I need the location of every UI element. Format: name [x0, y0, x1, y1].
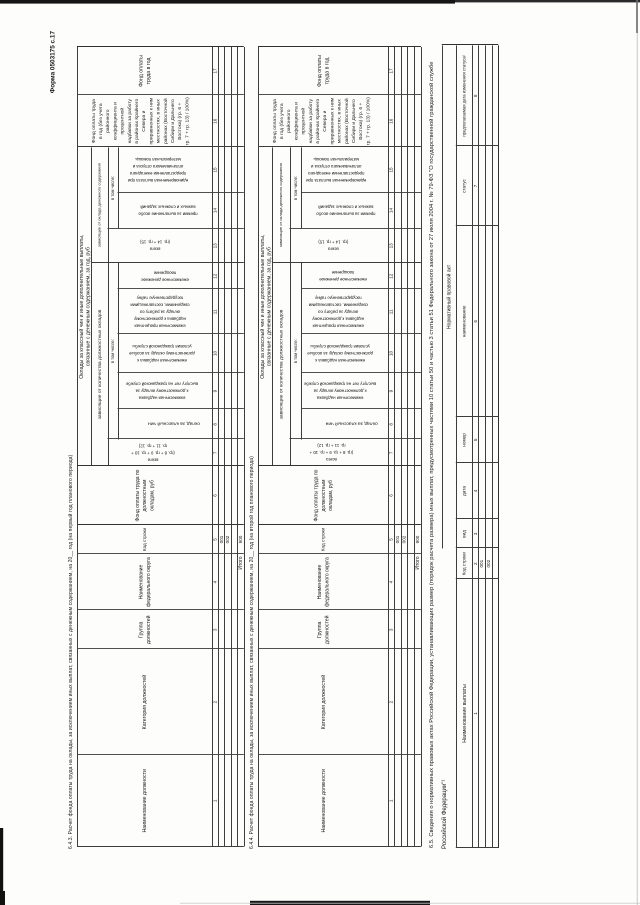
svg-text:зависящие от количества должно: зависящие от количества должностных окла… [98, 309, 103, 419]
svg-text:ежемесячное денежное: ежемесячное денежное [319, 277, 367, 282]
svg-text:2: 2 [212, 700, 217, 703]
svg-text:Код строки: Код строки [142, 527, 147, 551]
svg-text:федерального округа: федерального округа [324, 557, 330, 607]
svg-text:должностей: должностей [324, 615, 331, 644]
svg-text:6: 6 [389, 494, 394, 497]
svg-text:местностях, в иных: местностях, в иных [157, 99, 162, 144]
svg-text:премии за выполнение особо: премии за выполнение особо [316, 211, 376, 216]
svg-text:9: 9 [389, 389, 394, 392]
svg-text:окладу за работу со: окладу за работу со [139, 309, 180, 314]
svg-text:ежемесячная надбавка к: ежемесячная надбавка к [137, 358, 187, 363]
svg-text:коэффициента и: коэффициента и [112, 102, 118, 140]
svg-text:001: 001 [219, 535, 224, 543]
svg-text:14: 14 [212, 208, 217, 214]
svg-text:4: 4 [473, 489, 478, 492]
svg-text:002: 002 [225, 535, 230, 543]
svg-text:Группа: Группа [139, 621, 145, 638]
svg-text:ежемесячная надбавка к: ежемесячная надбавка к [315, 358, 365, 363]
svg-text:(гр. 8 + гр. 9 + гр. 10 +: (гр. 8 + гр. 9 + гр. 10 + [131, 450, 175, 455]
svg-text:002: 002 [486, 559, 491, 567]
svg-text:10: 10 [212, 351, 217, 357]
svg-text:Наименование выплаты: Наименование выплаты [462, 684, 468, 743]
svg-text:районного: районного [285, 109, 292, 133]
svg-text:Код строки: Код строки [321, 527, 326, 551]
svg-text:условия гражданской службы: условия гражданской службы [310, 344, 369, 349]
svg-text:надбавки за работу: надбавки за работу [127, 98, 133, 143]
svg-text:1: 1 [473, 712, 478, 715]
svg-text:ежемесячная процентная: ежемесячная процентная [312, 323, 364, 328]
svg-text:1: 1 [212, 799, 217, 802]
svg-text:16: 16 [389, 118, 394, 124]
svg-text:коэффициента и: коэффициента и [293, 102, 299, 140]
svg-text:процентной: процентной [300, 108, 307, 135]
svg-text:дата: дата [462, 486, 467, 496]
svg-text:материальная помощь: материальная помощь [313, 157, 359, 162]
svg-text:Фонд оплаты труда: Фонд оплаты труда [91, 99, 97, 143]
svg-text:17: 17 [389, 68, 394, 74]
svg-text:зависящие от количества должно: зависящие от количества должностных окла… [280, 309, 285, 419]
svg-text:3: 3 [473, 532, 478, 535]
svg-text:вид: вид [462, 530, 467, 538]
svg-text:должностей: должностей [145, 615, 152, 644]
svg-text:6.5. Сведения о нормативных пр: 6.5. Сведения о нормативных правовых акт… [428, 62, 435, 848]
svg-text:зависящие от оклада денежного: зависящие от оклада денежного содержания [278, 163, 283, 247]
svg-text:6: 6 [473, 320, 478, 323]
svg-text:ежемесячная надбавка: ежемесячная надбавка [316, 396, 363, 401]
svg-text:важных и сложных заданий: важных и сложных заданий [140, 205, 196, 210]
svg-text:надбавка к должностному: надбавка к должностному [311, 316, 364, 321]
svg-text:в год (без учета: в год (без учета [279, 103, 285, 139]
svg-text:Нормативный правовой акт: Нормативный правовой акт [446, 264, 453, 329]
svg-text:местностях, в иных: местностях, в иных [338, 99, 343, 144]
svg-text:приравненных к ним: приравненных к ним [330, 97, 335, 144]
svg-text:государственную тайну: государственную тайну [314, 295, 361, 300]
svg-text:Оклады за классный чин и иные: Оклады за классный чин и иные дополнител… [259, 235, 266, 379]
svg-text:окладам, руб: окладам, руб [328, 480, 334, 511]
svg-text:Российской Федерации"¹: Российской Федерации"¹ [441, 780, 448, 849]
svg-text:10: 10 [389, 351, 394, 357]
svg-text:важных и сложных заданий: важных и сложных заданий [318, 204, 374, 209]
svg-text:связанные с денежным содержани: связанные с денежным содержанием, за год… [86, 247, 92, 366]
svg-text:Итого: Итого [415, 556, 421, 569]
svg-text:всего: всего [325, 457, 336, 462]
svg-text:Востока) (гр. 6 +: Востока) (гр. 6 + [177, 103, 183, 140]
svg-text:Сибири и Дальнего: Сибири и Дальнего [170, 99, 176, 143]
svg-text:12: 12 [389, 273, 394, 279]
svg-text:16: 16 [212, 118, 217, 124]
svg-text:9: 9 [212, 389, 217, 392]
svg-text:5: 5 [389, 538, 394, 541]
svg-text:6.4.3. Расчет фонда оплаты тру: 6.4.3. Расчет фонда оплаты труда на окла… [67, 455, 74, 849]
svg-text:Оклады за классный чин и иные: Оклады за классный чин и иные дополнител… [78, 235, 85, 379]
svg-text:Востока) (гр. 6 +: Востока) (гр. 6 + [358, 103, 364, 140]
svg-text:окладу за работу со: окладу за работу со [318, 309, 359, 314]
svg-text:единовременная выплата при: единовременная выплата при [306, 178, 367, 183]
svg-text:Севера и: Севера и [141, 110, 147, 131]
svg-text:оплачиваемого отпуска и: оплачиваемого отпуска и [310, 164, 361, 169]
svg-text:13: 13 [389, 243, 394, 249]
svg-text:3: 3 [212, 628, 217, 631]
svg-text:ежемесячная процентная: ежемесячная процентная [134, 323, 186, 328]
svg-text:всего: всего [147, 457, 158, 462]
svg-text:материальная помощь: материальная помощь [134, 157, 180, 162]
svg-text:оклад за классный чин: оклад за классный чин [148, 421, 200, 428]
svg-text:Фонд оплаты труда по: Фонд оплаты труда по [313, 469, 319, 521]
svg-text:(гр. 8 + гр. 9 + гр. 10 +: (гр. 8 + гр. 9 + гр. 10 + [309, 450, 353, 455]
svg-text:в год (без учета: в год (без учета [98, 103, 104, 139]
svg-text:8: 8 [473, 94, 478, 97]
svg-text:гр. 11 + гр. 12): гр. 11 + гр. 12) [138, 443, 167, 448]
svg-text:7: 7 [473, 184, 478, 187]
svg-text:в том числе:: в том числе: [293, 176, 298, 200]
svg-text:должностному окладу за особые: должностному окладу за особые [307, 351, 373, 356]
svg-text:оклад за классный чин: оклад за классный чин [325, 421, 377, 428]
svg-text:предполагаемая дата изменения: предполагаемая дата изменения статуса² [461, 54, 466, 136]
svg-text:Фонд оплаты труда: Фонд оплаты труда [272, 99, 278, 143]
svg-text:в том числе:: в том числе: [110, 339, 115, 363]
svg-text:(гр. 14 + гр. 15): (гр. 14 + гр. 15) [139, 240, 170, 245]
svg-text:номер: номер [462, 433, 467, 447]
svg-text:наименование: наименование [462, 305, 467, 337]
svg-text:сведениями, составляющими: сведениями, составляющими [130, 302, 190, 307]
svg-text:связанные с денежным содержани: связанные с денежным содержанием, за год… [267, 247, 273, 366]
svg-text:11: 11 [212, 309, 217, 314]
svg-text:должностным: должностным [142, 479, 148, 512]
svg-text:ежемесячная надбавка: ежемесячная надбавка [138, 396, 185, 401]
svg-text:должностным: должностным [321, 479, 327, 512]
svg-text:гр. 7 + гр. 13) / 100%): гр. 7 + гр. 13) / 100%) [184, 97, 190, 145]
svg-text:к должностному окладу за: к должностному окладу за [135, 389, 188, 394]
svg-text:районах (Восточной: районах (Восточной [162, 98, 169, 144]
svg-text:002: 002 [402, 535, 407, 543]
svg-text:процентной: процентной [119, 108, 126, 135]
svg-text:поощрение: поощрение [331, 270, 354, 275]
svg-text:единовременная выплата при: единовременная выплата при [127, 178, 188, 183]
svg-text:Сибири и Дальнего: Сибири и Дальнего [351, 99, 357, 143]
svg-text:оплачиваемого отпуска и: оплачиваемого отпуска и [132, 164, 183, 169]
svg-text:всего: всего [149, 247, 160, 252]
svg-text:900: 900 [415, 535, 420, 543]
svg-text:Категория должностей: Категория должностей [141, 675, 148, 730]
svg-text:гр. 11 + гр. 12): гр. 11 + гр. 12) [317, 443, 346, 448]
svg-text:6.4.4. Расчет фонда оплаты тру: 6.4.4. Расчет фонда оплаты труда на окла… [248, 456, 255, 849]
svg-text:государственную тайну: государственную тайну [136, 295, 183, 300]
svg-text:15: 15 [212, 167, 217, 173]
svg-text:4: 4 [212, 580, 217, 583]
svg-text:001: 001 [395, 535, 400, 543]
svg-text:8: 8 [389, 423, 394, 426]
svg-text:13: 13 [212, 243, 217, 249]
svg-text:предоставлении ежегодного: предоставлении ежегодного [129, 171, 186, 176]
svg-text:Фонд оплаты: Фонд оплаты [317, 55, 323, 87]
svg-text:6: 6 [212, 494, 217, 497]
svg-text:Фонд оплаты: Фонд оплаты [139, 55, 145, 87]
svg-text:условия гражданской службы: условия гражданской службы [132, 344, 191, 349]
svg-text:Форма 0503175 с.17: Форма 0503175 с.17 [49, 31, 56, 94]
svg-text:14: 14 [389, 208, 394, 214]
svg-text:в том числе:: в том числе: [110, 176, 115, 200]
svg-text:Группа: Группа [317, 621, 323, 638]
svg-text:в районах Крайнего: в районах Крайнего [314, 98, 321, 143]
svg-text:ежемесячное денежное: ежемесячное денежное [141, 277, 189, 282]
svg-text:Севера и: Севера и [322, 110, 328, 131]
svg-text:Код строки: Код строки [462, 552, 467, 576]
svg-text:Категория должностей: Категория должностей [320, 675, 327, 730]
svg-text:(гр. 14 + гр. 15): (гр. 14 + гр. 15) [318, 240, 349, 245]
svg-text:Наименование: Наименование [317, 565, 323, 600]
svg-text:001: 001 [479, 559, 484, 567]
svg-text:статус: статус [462, 178, 467, 192]
svg-text:премии за выполнение особо: премии за выполнение особо [138, 212, 198, 217]
svg-text:зависящие от оклада денежного: зависящие от оклада денежного содержания [97, 163, 102, 247]
svg-text:Наименование: Наименование [139, 565, 145, 600]
svg-text:поощрение: поощрение [153, 270, 176, 275]
svg-text:труда в год: труда в год [146, 58, 152, 85]
svg-text:к должностному окладу за: к должностному окладу за [313, 389, 366, 394]
svg-text:7: 7 [389, 451, 394, 454]
svg-text:12: 12 [212, 273, 217, 279]
svg-text:11: 11 [389, 309, 394, 314]
svg-text:5: 5 [473, 438, 478, 441]
svg-text:районах (Восточной: районах (Восточной [343, 98, 350, 144]
svg-text:надбавка к должностному: надбавка к должностному [133, 316, 186, 321]
svg-text:900: 900 [238, 535, 243, 543]
svg-text:всего: всего [327, 247, 338, 252]
svg-text:17: 17 [212, 68, 217, 74]
svg-text:15: 15 [389, 167, 394, 173]
svg-text:Наименование должности: Наименование должности [142, 769, 148, 832]
svg-text:выслугу лет на гражданской слу: выслугу лет на гражданской службе [303, 382, 376, 387]
svg-text:Фонд оплаты труда по: Фонд оплаты труда по [135, 469, 141, 521]
svg-text:районного: районного [104, 109, 111, 133]
svg-text:выслугу лет на гражданской слу: выслугу лет на гражданской службе [125, 382, 198, 387]
svg-text:1: 1 [389, 799, 394, 802]
svg-text:2: 2 [473, 562, 478, 565]
svg-text:Итого: Итого [238, 556, 244, 569]
svg-text:надбавки за работу: надбавки за работу [308, 98, 314, 143]
svg-text:в том числе:: в том числе: [293, 339, 298, 363]
svg-text:2: 2 [389, 700, 394, 703]
svg-text:Наименование должности: Наименование должности [321, 769, 327, 832]
svg-text:должностному окладу за особые: должностному окладу за особые [129, 351, 195, 356]
svg-text:в районах Крайнего: в районах Крайнего [133, 98, 140, 143]
svg-text:7: 7 [212, 451, 217, 454]
svg-text:3: 3 [389, 628, 394, 631]
svg-text:предоставлении ежегодного: предоставлении ежегодного [307, 171, 364, 176]
svg-text:приравненных к ним: приравненных к ним [149, 97, 154, 144]
svg-text:труда в год: труда в год [325, 58, 331, 85]
svg-text:сведениями, составляющими: сведениями, составляющими [308, 302, 368, 307]
svg-text:окладам, руб: окладам, руб [149, 480, 155, 511]
svg-text:8: 8 [212, 423, 217, 426]
svg-text:4: 4 [389, 580, 394, 583]
svg-text:федерального округа: федерального округа [146, 557, 152, 607]
svg-text:гр. 7 + гр. 13) / 100%): гр. 7 + гр. 13) / 100%) [365, 97, 371, 145]
svg-text:5: 5 [212, 538, 217, 541]
